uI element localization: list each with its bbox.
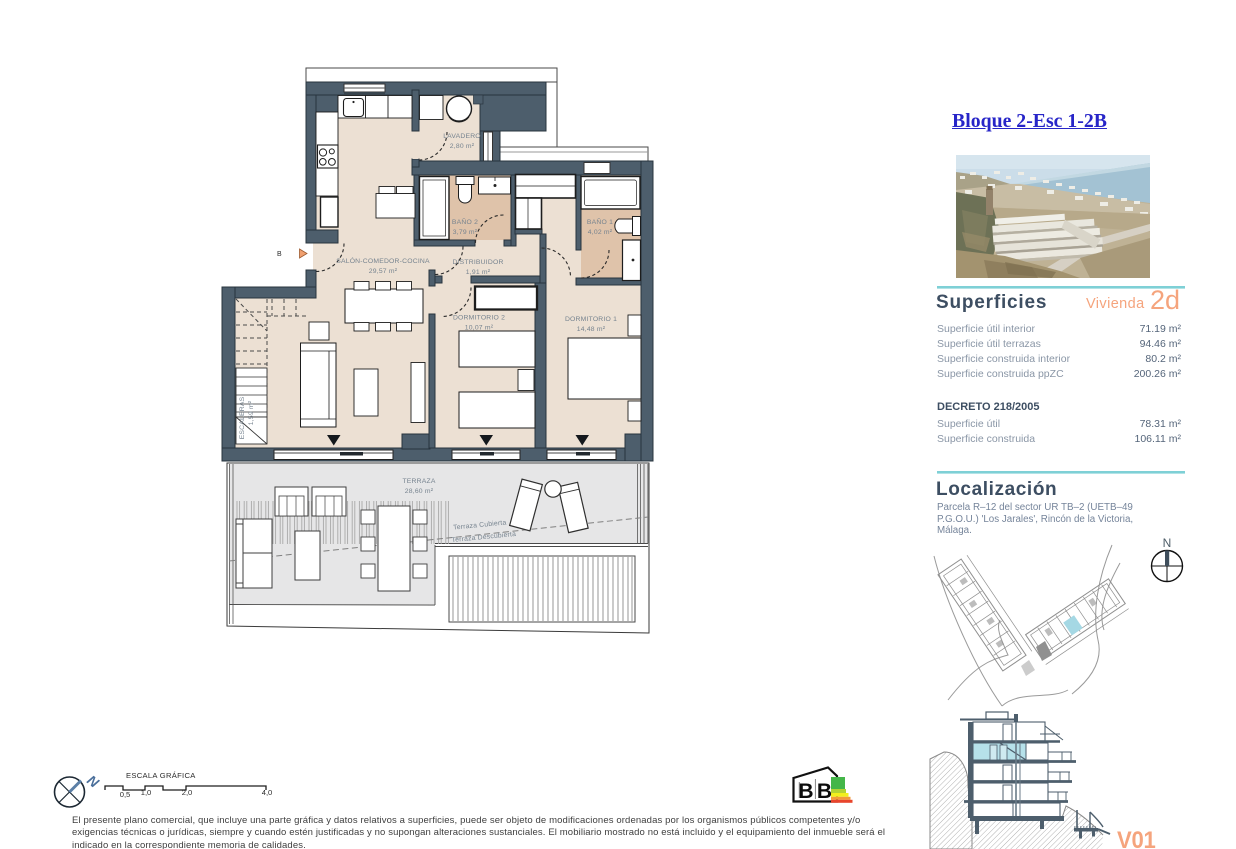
svg-text:BAÑO 1: BAÑO 1 (587, 217, 613, 226)
svg-text:ESCALA GRÁFICA: ESCALA GRÁFICA (126, 771, 196, 780)
svg-text:4,02 m²: 4,02 m² (588, 229, 613, 236)
svg-text:4,0: 4,0 (262, 788, 273, 797)
svg-text:2,0: 2,0 (182, 788, 193, 797)
svg-text:TERRAZA: TERRAZA (402, 478, 435, 485)
svg-text:14,48 m²: 14,48 m² (577, 326, 606, 333)
svg-text:ESCALERAS: ESCALERAS (239, 396, 246, 439)
svg-text:B: B (798, 780, 813, 803)
svg-text:B: B (277, 251, 282, 258)
svg-text:BAÑO 2: BAÑO 2 (452, 217, 478, 226)
svg-text:28,60 m²: 28,60 m² (405, 488, 434, 495)
svg-text:1,59 m²: 1,59 m² (248, 400, 255, 425)
svg-text:SALÓN-COMEDOR-COCINA: SALÓN-COMEDOR-COCINA (336, 256, 430, 265)
svg-text:LAVADERO: LAVADERO (443, 133, 481, 140)
svg-text:DISTRIBUIDOR: DISTRIBUIDOR (452, 259, 503, 266)
svg-text:10,07 m²: 10,07 m² (465, 325, 494, 332)
svg-text:B: B (817, 780, 832, 803)
svg-text:DORMITORIO 1: DORMITORIO 1 (565, 316, 617, 323)
svg-text:3,79 m²: 3,79 m² (453, 229, 478, 236)
svg-text:N: N (1163, 536, 1172, 550)
svg-text:1,91 m²: 1,91 m² (466, 269, 491, 276)
svg-text:2,80 m²: 2,80 m² (450, 143, 475, 150)
svg-text:N: N (84, 772, 103, 791)
svg-text:DORMITORIO 2: DORMITORIO 2 (453, 315, 505, 322)
svg-text:0,5: 0,5 (120, 790, 131, 799)
svg-text:1,0: 1,0 (141, 788, 152, 797)
svg-text:29,57 m²: 29,57 m² (369, 268, 398, 275)
